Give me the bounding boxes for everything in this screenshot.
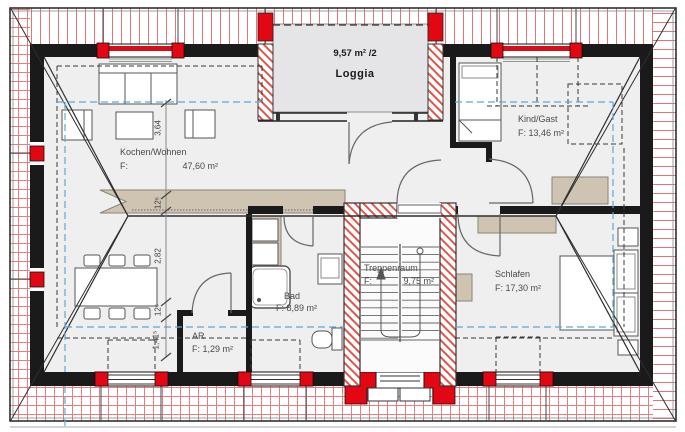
room-label-ar: AR F: 1,29 m² bbox=[192, 331, 233, 355]
floor-plan: 9,57 m² /2 Loggia Kochen/Wohnen F: 47,60… bbox=[0, 0, 685, 432]
tall-cabinet bbox=[249, 216, 281, 268]
sofa bbox=[99, 64, 177, 104]
dimension-label: 12⁶ bbox=[154, 197, 163, 209]
area-value: F: 17,30 m² bbox=[495, 283, 541, 294]
room-name: Kind/Gast bbox=[518, 114, 564, 125]
loggia-label: 9,57 m² /2 Loggia bbox=[296, 48, 414, 80]
area-value: 47,60 m² bbox=[182, 161, 218, 172]
dimension-label: 2,82 bbox=[154, 248, 163, 264]
dimension-label: 1,41⁵ bbox=[152, 331, 161, 350]
room-label-kochen-wohnen: Kochen/Wohnen F: 47,60 m² bbox=[120, 147, 218, 172]
room-label-bad: Bad F: 8,89 m² bbox=[284, 291, 317, 314]
nightstand bbox=[618, 340, 638, 355]
area-value: 9,75 m² bbox=[403, 276, 434, 287]
washbasin bbox=[318, 254, 342, 284]
loggia-pier bbox=[258, 44, 273, 120]
loggia-pier bbox=[428, 44, 443, 120]
area-prefix: F: bbox=[364, 276, 372, 287]
dimension-label: 12⁶ bbox=[154, 304, 163, 316]
coffee-table bbox=[116, 112, 153, 139]
room-name: Kochen/Wohnen bbox=[120, 147, 218, 158]
room-label-treppenraum: Treppenraum F: 9,75 m² bbox=[364, 263, 434, 287]
window bbox=[238, 372, 313, 386]
dimension-label: 3,64 bbox=[154, 120, 163, 136]
window bbox=[97, 43, 184, 62]
room-label-kind-gast: Kind/Gast F: 13,46 m² bbox=[518, 114, 564, 139]
room-name: Bad bbox=[284, 291, 317, 302]
stair-wall bbox=[344, 203, 360, 386]
stair-bay-window bbox=[345, 372, 455, 404]
stair-wall bbox=[440, 203, 456, 386]
window bbox=[95, 372, 168, 386]
roof-post bbox=[258, 13, 273, 41]
dresser bbox=[478, 216, 556, 233]
nightstand bbox=[618, 228, 638, 246]
area-value: F: 13,46 m² bbox=[518, 128, 564, 139]
roof-post bbox=[428, 13, 443, 41]
armchair bbox=[185, 110, 215, 138]
area-value: F: 8,89 m² bbox=[276, 303, 317, 314]
loggia-name: Loggia bbox=[296, 68, 414, 80]
room-name: Schlafen bbox=[495, 269, 541, 280]
area-prefix: F: bbox=[120, 161, 128, 172]
room-label-schlafen: Schlafen F: 17,30 m² bbox=[495, 269, 541, 294]
window bbox=[483, 372, 553, 386]
room-name: AR bbox=[192, 331, 233, 342]
toilet bbox=[312, 328, 342, 350]
cabinet bbox=[455, 274, 472, 301]
area-value: F: 1,29 m² bbox=[192, 344, 233, 355]
desk bbox=[552, 177, 608, 204]
loggia-area: 9,57 m² /2 bbox=[296, 48, 414, 59]
room-name: Treppenraum bbox=[364, 263, 434, 274]
